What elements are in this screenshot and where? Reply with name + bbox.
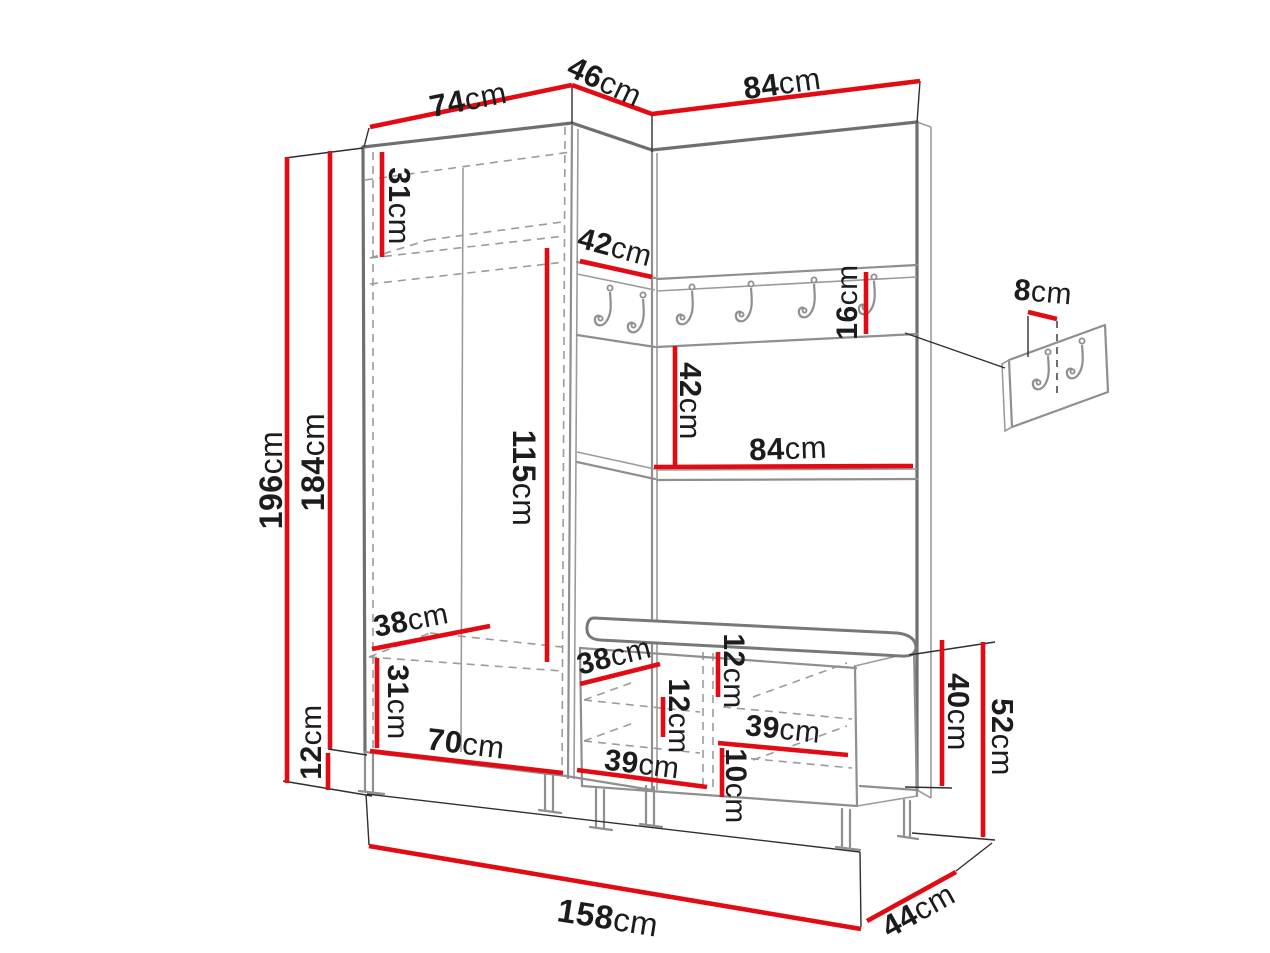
- dim-line-8: [1028, 312, 1057, 319]
- dim-label-total-width: 158cm: [555, 891, 661, 943]
- dim-label-bench-top-height: 12cm: [718, 633, 751, 708]
- dim-label-base-leg-height: 12cm: [295, 704, 328, 779]
- dim-label-panel-shelf-drop: 42cm: [674, 362, 709, 440]
- dim-label-bench-depth: 44cm: [875, 876, 960, 944]
- dim-label-panel-top-width: 84cm: [741, 60, 823, 105]
- wardrobe: [363, 122, 917, 790]
- dim-label-carcass-height: 184cm: [295, 413, 331, 512]
- dim-label-hanging-space-height: 115cm: [506, 430, 542, 527]
- dim-label-bench-plinth-height: 10cm: [720, 748, 753, 823]
- dim-label-bench-total-height: 52cm: [986, 698, 1021, 776]
- dim-line-84-shelf: [654, 466, 913, 467]
- dimension-labels: 74cm 46cm 84cm 31cm 196cm 184cm 115cm 38…: [253, 49, 1073, 944]
- coat-hook-icon: [628, 292, 646, 332]
- wall-hook-panel: [1002, 325, 1108, 431]
- coat-hook-icon: [595, 285, 613, 325]
- dim-label-bench-inner-shelf-height: 12cm: [663, 678, 696, 753]
- dim-label-bottom-shelf-height: 31cm: [382, 664, 415, 739]
- dim-label-top-shelf-height: 31cm: [383, 167, 418, 245]
- hallway-set-drawing: 74cm 46cm 84cm 31cm 196cm 184cm 115cm 38…: [0, 0, 1270, 953]
- dim-label-hook-rail-height: 16cm: [831, 264, 864, 339]
- dim-label-corner-top-depth: 46cm: [562, 49, 647, 114]
- wardrobe-outline: [363, 122, 917, 790]
- dim-label-total-height: 196cm: [253, 431, 289, 530]
- dim-label-bench-right-width: 39cm: [744, 709, 822, 750]
- dim-label-wardrobe-top-width: 74cm: [426, 74, 509, 123]
- dim-label-panel-shelf-width: 84cm: [749, 429, 828, 467]
- dim-label-bench-carcass-height: 40cm: [942, 673, 977, 751]
- dim-label-wall-panel-hook-offset: 8cm: [1013, 273, 1074, 311]
- furniture-dimension-diagram: 74cm 46cm 84cm 31cm 196cm 184cm 115cm 38…: [0, 0, 1270, 953]
